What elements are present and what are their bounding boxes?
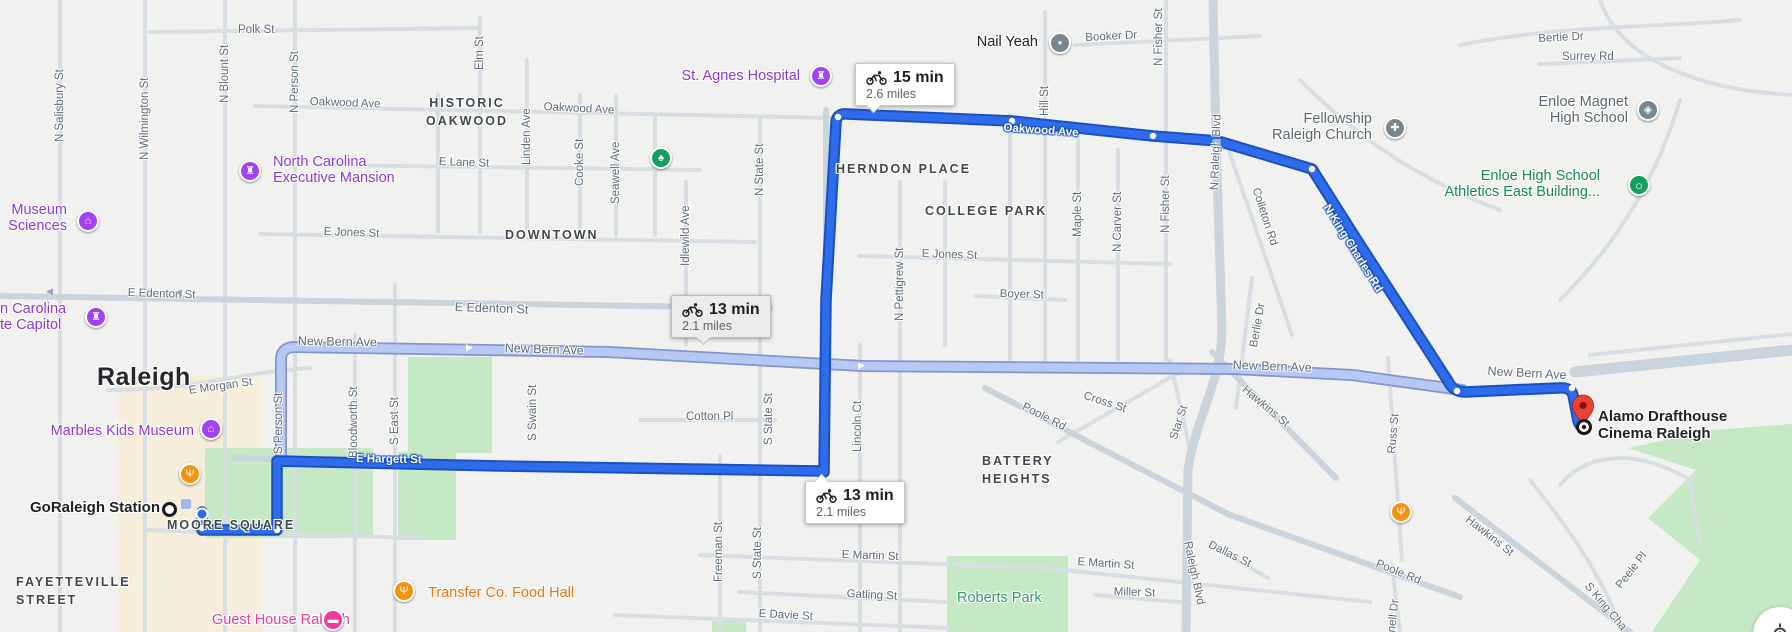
neighborhood-label-college-park: COLLEGE PARK — [925, 202, 1047, 220]
poi-label-enloe-magnet-high-school[interactable]: Enloe Magnet High School — [1408, 95, 1628, 127]
neighborhood-label-battery-heights: BATTERY HEIGHTS — [982, 452, 1054, 488]
street-label-new-bern-ave: New Bern Ave — [1232, 358, 1311, 376]
street-label-n-carver-st: N Carver St — [1111, 192, 1125, 252]
poi-pin-fellowship-raleigh-church-church-icon[interactable]: ✚ — [1384, 117, 1406, 139]
street-label-polk-st: Polk St — [238, 23, 274, 37]
street-label-new-bern-ave: New Bern Ave — [504, 341, 583, 359]
poi-pin-museum-of-sciences-museum-icon[interactable]: ⌂ — [77, 210, 99, 232]
poi-label-nc-executive-mansion[interactable]: North Carolina Executive Mansion — [273, 155, 395, 187]
bicycle-icon — [682, 303, 703, 317]
street-label-e-edenton-st: E Edenton St — [454, 300, 528, 318]
street-label-: ◀ — [46, 286, 53, 297]
street-label-n-person-st: N Person St — [288, 51, 302, 113]
poi-pin-transfer-co-food-hall-restaurant-icon[interactable]: Ψ — [393, 580, 415, 602]
poi-pin-hawkins-restaurant-restaurant-icon[interactable]: Ψ — [1390, 501, 1412, 523]
street-label-e-jones-st: E Jones St — [921, 247, 977, 263]
street-label-s-state-st: S State St — [751, 527, 765, 579]
street-label-new-bern-ave: New Bern Ave — [298, 334, 377, 351]
street-label-: ▶ — [858, 360, 865, 371]
street-label-e-davie-st: E Davie St — [758, 607, 813, 624]
poi-pin-enloe-magnet-high-school-school-icon[interactable]: ◈ — [1637, 99, 1659, 121]
street-label-lincoln-ct: Lincoln Ct — [851, 401, 865, 452]
street-label-e-martin-st: E Martin St — [841, 548, 898, 564]
route-badge-15min[interactable]: 15 min2.6 miles — [855, 63, 955, 106]
street-label-n-fisher-st: N Fisher St — [1152, 8, 1166, 66]
poi-label-nail-yeah[interactable]: Nail Yeah — [818, 35, 1038, 51]
poi-label-fellowship-raleigh-church[interactable]: Fellowship Raleigh Church — [1152, 112, 1372, 144]
street-label-idlewild-ave: Idlewild Ave — [679, 205, 693, 266]
badge-time: 13 min — [843, 487, 894, 505]
badge-distance: 2.6 miles — [866, 87, 944, 101]
street-label-linden-ave: Linden Ave — [520, 108, 534, 165]
destination-target — [1578, 421, 1591, 434]
poi-pin-oakwood-park-tree-tree-icon[interactable]: ♠ — [650, 147, 672, 169]
street-label-miller-st: Miller St — [1113, 585, 1155, 601]
poi-label-marbles-kids-museum[interactable]: Marbles Kids Museum — [0, 424, 194, 440]
street-label-boyer-st: Boyer St — [999, 287, 1044, 303]
street-label-n-fisher-st: N Fisher St — [1159, 175, 1173, 233]
neighborhood-label-fayetteville-street: FAYETTEVILLE STREET — [16, 573, 131, 609]
poi-label-roberts-park[interactable]: Roberts Park — [957, 591, 1042, 607]
street-label-freeman-st: Freeman St — [712, 522, 726, 582]
badge-distance: 2.1 miles — [682, 319, 760, 333]
poi-label-goraleigh-station[interactable]: GoRaleigh Station — [0, 500, 160, 517]
street-label-: ◀ — [175, 287, 182, 298]
street-label-s-person-st: S Person St — [272, 393, 286, 454]
street-label-elm-st: Elm St — [473, 36, 487, 70]
poi-pin-nc-state-capitol-rook-icon[interactable]: ♜ — [85, 306, 107, 328]
street-label-cotton-pl: Cotton Pl — [686, 410, 733, 424]
poi-pin-enloe-athletics-east-ring-icon[interactable]: ○ — [1628, 174, 1650, 196]
badge-time: 15 min — [893, 69, 944, 87]
street-label-maple-st: Maple St — [1071, 192, 1085, 237]
street-label-booker-dr: Booker Dr — [1085, 28, 1137, 45]
street-label-s-swain-st: S Swain St — [526, 385, 540, 441]
badge-distance: 2.1 miles — [816, 505, 894, 519]
bicycle-icon — [816, 489, 837, 503]
street-label-hill-st: Hill St — [1038, 86, 1052, 116]
city-label-raleigh: Raleigh — [97, 363, 191, 392]
street-label-n-state-st: N State St — [753, 144, 767, 196]
poi-pin-moore-square-restaurant-restaurant-icon[interactable]: Ψ — [179, 463, 201, 485]
street-label-surrey-rd: Surrey Rd — [1562, 50, 1614, 64]
poi-label-st-agnes-hospital[interactable]: St. Agnes Hospital — [580, 69, 800, 85]
poi-pin-goraleigh-station-station-icon[interactable] — [162, 502, 177, 517]
street-label-bertie-dr: Bertie Dr — [1538, 30, 1584, 47]
poi-pin-nail-yeah-dot-icon[interactable]: ● — [1049, 32, 1071, 54]
street-label-s-state-st: S State St — [762, 393, 776, 445]
neighborhood-label-herndon-place: HERNDON PLACE — [836, 160, 971, 178]
street-label-n-wilmington-st: N Wilmington St — [138, 78, 152, 160]
street-label-e-lane-st: E Lane St — [438, 155, 489, 171]
route-badge-13min[interactable]: 13 min2.1 miles — [805, 481, 905, 524]
my-location-icon — [1769, 623, 1791, 632]
poi-label-transfer-co-food-hall[interactable]: Transfer Co. Food Hall — [428, 586, 574, 602]
poi-pin-moore-square-transit-transit-icon[interactable] — [181, 499, 191, 509]
poi-pin-nc-executive-mansion-rook-icon[interactable]: ♜ — [239, 160, 261, 182]
bicycle-icon — [866, 71, 887, 85]
poi-label-nc-state-capitol[interactable]: n Carolina te Capitol — [0, 302, 66, 334]
route-badge-alt-13min[interactable]: 13 min2.1 miles — [671, 295, 771, 338]
street-label-seawell-ave: Seawell Ave — [609, 142, 623, 204]
street-label-e-edenton-st: E Edenton St — [127, 286, 195, 303]
street-label-n-blount-st: N Blount St — [218, 45, 232, 103]
neighborhood-label-historic-oakwood: HISTORIC OAKWOOD — [412, 94, 522, 130]
street-label-bloodworth-st: Bloodworth St — [347, 386, 361, 458]
street-label-e-jones-st: E Jones St — [323, 225, 379, 241]
poi-label-alamo-drafthouse[interactable]: Alamo Drafthouse Cinema Raleigh — [1598, 409, 1727, 442]
poi-pin-guest-house-raleigh-hotel-icon[interactable]: ▬ — [322, 609, 344, 631]
street-label-cooke-st: Cooke St — [573, 139, 587, 186]
neighborhood-label-moore-square: MOORE SQUARE — [167, 516, 295, 534]
neighborhood-label-downtown: DOWNTOWN — [505, 226, 599, 244]
poi-label-enloe-athletics-east[interactable]: Enloe High School Athletics East Buildin… — [1380, 169, 1600, 201]
poi-pin-marbles-kids-museum-museum-icon[interactable]: ⌂ — [200, 418, 222, 440]
street-label-s-east-st: S East St — [388, 397, 402, 445]
street-label-: ▶ — [466, 342, 473, 353]
poi-label-museum-of-sciences[interactable]: Museum Sciences — [0, 203, 67, 235]
street-label-oakwood-ave: Oakwood Ave — [309, 95, 380, 112]
map-canvas[interactable]: RaleighHISTORIC OAKWOODDOWNTOWNHERNDON P… — [0, 0, 1792, 632]
poi-pin-st-agnes-hospital-rook-icon[interactable]: ♜ — [810, 65, 832, 87]
badge-time: 13 min — [709, 301, 760, 319]
street-label-n-salisbury-st: N Salisbury St — [53, 69, 67, 142]
street-label-gatling-st: Gatling St — [846, 587, 897, 604]
street-label-n-pettigrew-st: N Pettigrew St — [893, 248, 907, 322]
street-label-e-hargett-st: E Hargett St — [356, 452, 422, 468]
